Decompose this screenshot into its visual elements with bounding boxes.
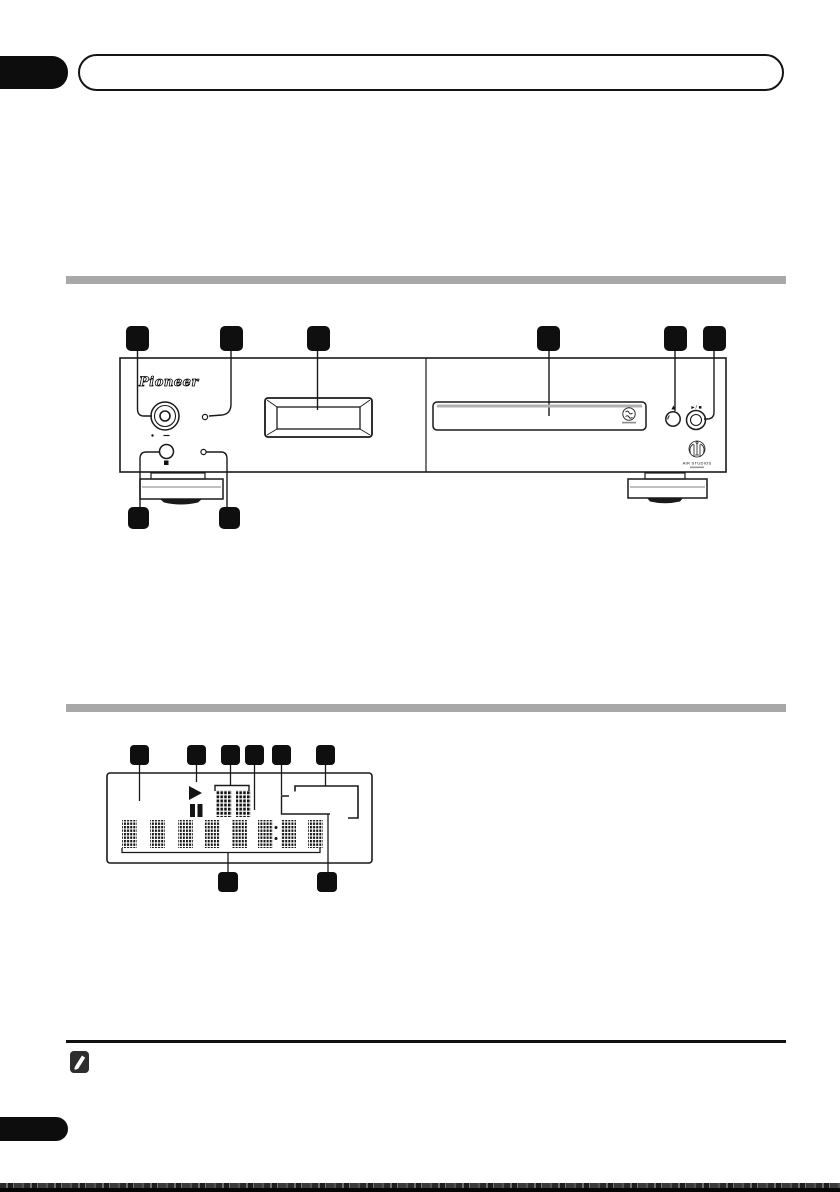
char-cell <box>281 820 296 848</box>
level-min-mark <box>151 434 153 436</box>
leader-2 <box>209 351 231 416</box>
display-callout-1 <box>130 745 149 765</box>
section-title-pill <box>78 54 784 91</box>
right-foot <box>628 473 707 503</box>
timer-led-icon <box>201 449 206 454</box>
power-led-icon <box>202 414 207 419</box>
char-cell <box>150 820 165 848</box>
char-cell <box>205 820 220 848</box>
display-leader-lines <box>140 765 329 872</box>
callout-5 <box>664 326 687 351</box>
callout-1 <box>126 326 149 351</box>
colon-dot-bottom <box>275 837 278 840</box>
display-callout-7 <box>218 872 238 892</box>
display-callout-5 <box>272 745 291 765</box>
time-row-bracket <box>122 848 320 853</box>
display-window <box>265 398 372 437</box>
colon-dot-top <box>275 826 278 829</box>
callout-6 <box>703 326 726 351</box>
phones-knob-icon <box>160 445 174 459</box>
callout-3 <box>307 326 330 351</box>
air-studios-logo-icon: AIR STUDIOS <box>683 441 712 468</box>
page-number-badge <box>0 1117 68 1141</box>
remote-sensor-icon <box>164 461 169 466</box>
sacd-logo-icon <box>622 408 636 424</box>
character-display-row <box>122 820 323 848</box>
callout-4 <box>537 326 560 351</box>
char-cell <box>258 820 273 848</box>
char-cell <box>308 820 323 848</box>
note-divider-line <box>66 1040 786 1043</box>
power-knob-icon <box>151 402 179 430</box>
disc-tray <box>433 402 646 430</box>
display-callout-3 <box>221 745 240 765</box>
page-corner-tab <box>0 56 68 89</box>
phones-controls <box>151 434 206 465</box>
sub-area-bracket <box>282 796 331 814</box>
char-cell <box>232 820 247 848</box>
eject-button: ▲ <box>666 405 680 427</box>
callout-2 <box>220 326 243 351</box>
track-number-digit-1 <box>216 790 232 817</box>
display-callouts <box>130 745 337 892</box>
note-icon <box>70 1051 89 1073</box>
display-callout-4 <box>245 745 264 765</box>
message-area-bracket <box>295 786 358 818</box>
play-indicator-icon <box>189 786 202 800</box>
callout-7 <box>128 507 149 529</box>
pause-indicator-icon <box>190 804 203 817</box>
display-figure <box>90 740 390 900</box>
play-stop-button: ►/ ■ <box>687 405 706 430</box>
callout-8 <box>219 507 240 529</box>
track-number-digit-2 <box>236 790 251 817</box>
left-foot <box>140 473 223 505</box>
display-callout-8 <box>317 872 337 892</box>
front-panel-figure: Pioneer ▲ <box>100 320 746 535</box>
eject-icon: ▲ <box>670 405 677 412</box>
section-divider-bar-1 <box>66 276 786 284</box>
char-cell <box>178 820 193 848</box>
char-cell <box>122 820 137 848</box>
air-studios-text: AIR STUDIOS <box>683 461 712 466</box>
page-bottom-edge <box>0 1188 840 1192</box>
display-callout-6 <box>316 745 335 765</box>
pioneer-logo: Pioneer <box>138 375 199 390</box>
display-callout-2 <box>187 745 206 765</box>
section-divider-bar-2 <box>66 704 786 712</box>
leader-6 <box>704 351 714 419</box>
